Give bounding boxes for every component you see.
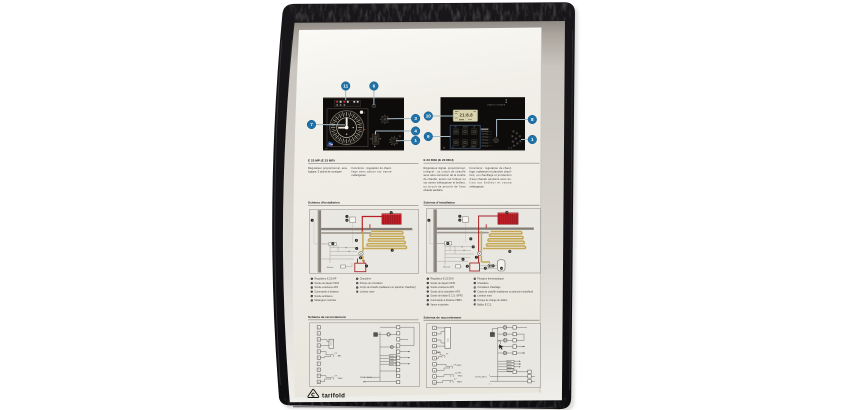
svg-text:C1: C1 bbox=[452, 146, 454, 148]
svg-text:ch1uffage: ch1uffage bbox=[481, 134, 488, 136]
svg-text:ch5uffage: ch5uffage bbox=[481, 145, 488, 147]
svg-text:Sonde extérieure AF5: Sonde extérieure AF5 bbox=[314, 286, 338, 289]
svg-text:vanne: vanne bbox=[390, 361, 394, 363]
svg-text:E 23 DIGI (E 23 DIGI): E 23 DIGI (E 23 DIGI) bbox=[424, 158, 454, 162]
svg-text:Commande à distance: Commande à distance bbox=[314, 291, 339, 294]
svg-text:Sonde de départ VF45: Sonde de départ VF45 bbox=[430, 282, 455, 285]
svg-text:ch3uffage: ch3uffage bbox=[481, 140, 488, 142]
svg-text:Commande à distance FBR1: Commande à distance FBR1 bbox=[430, 299, 462, 302]
svg-text:Sonde de la chaudière KF5: Sonde de la chaudière KF5 bbox=[430, 290, 460, 293]
svg-text:Régulateur E 23 MP: Régulateur E 23 MP bbox=[314, 278, 336, 281]
svg-text:Corps de chauffe (radiateurs o: Corps de chauffe (radiateurs ou plancher… bbox=[477, 290, 533, 293]
svg-text:Chaudière: Chaudière bbox=[360, 278, 372, 281]
svg-text:7: 7 bbox=[310, 122, 313, 127]
svg-text:LANDIS STAEFA: LANDIS STAEFA bbox=[487, 103, 506, 106]
svg-text:KF5: KF5 bbox=[458, 373, 461, 375]
svg-text:AF5: AF5 bbox=[437, 351, 440, 354]
svg-text:Sonde extérieure AF5: Sonde extérieure AF5 bbox=[430, 286, 454, 289]
svg-text:bus: bus bbox=[448, 338, 450, 341]
svg-text:MODE: MODE bbox=[463, 127, 468, 129]
svg-text:a b: a b bbox=[325, 148, 327, 150]
svg-text:ch4uffage: ch4uffage bbox=[481, 142, 488, 144]
svg-text:Sonde de ballon E.C.S.-SPF5: Sonde de ballon E.C.S.-SPF5 bbox=[430, 295, 463, 298]
svg-text:1: 1 bbox=[531, 137, 534, 142]
svg-text:vanne: vanne bbox=[508, 367, 512, 369]
svg-text:RESET: RESET bbox=[471, 146, 476, 148]
svg-text:Schéma d'installation: Schéma d'installation bbox=[424, 200, 456, 204]
svg-text:Mélangeur motorisé: Mélangeur motorisé bbox=[314, 299, 336, 302]
svg-text:E 23 MP (E 23 MP): E 23 MP (E 23 MP) bbox=[308, 158, 335, 162]
svg-text:e: e bbox=[489, 383, 490, 385]
svg-text:10: 10 bbox=[426, 114, 432, 119]
svg-text:VF45: VF45 bbox=[458, 375, 463, 377]
svg-text:vanne: vanne bbox=[390, 355, 394, 357]
svg-text:vanne: vanne bbox=[390, 358, 394, 360]
svg-text:vanne: vanne bbox=[508, 370, 512, 372]
svg-text:Régulateur digital, proportion: Régulateur digital, proportionnel,intégr… bbox=[424, 166, 467, 192]
svg-text:Ballon E.C.S.: Ballon E.C.S. bbox=[477, 303, 492, 306]
svg-text:21:8.8: 21:8.8 bbox=[460, 113, 474, 118]
svg-text:230 V~ 50 Hz: 230 V~ 50 Hz bbox=[360, 377, 372, 379]
svg-text:Limiteur maxi: Limiteur maxi bbox=[360, 291, 375, 294]
svg-text:vanne: vanne bbox=[508, 364, 512, 366]
svg-text:a: a bbox=[489, 374, 490, 376]
svg-text:SET: SET bbox=[462, 146, 465, 148]
svg-text:ch2uffage: ch2uffage bbox=[481, 137, 488, 139]
svg-text:Sonde de départ VF64: Sonde de départ VF64 bbox=[314, 282, 339, 285]
svg-text:tarifold: tarifold bbox=[322, 392, 345, 399]
svg-text:vanne: vanne bbox=[508, 361, 512, 363]
svg-text:Pompe de circulation: Pompe de circulation bbox=[360, 282, 383, 285]
svg-text:1: 1 bbox=[414, 138, 417, 143]
svg-text:8: 8 bbox=[531, 117, 534, 122]
svg-text:Mazout: Mazout bbox=[327, 266, 334, 269]
svg-text:Régulateur E 23 DIGI: Régulateur E 23 DIGI bbox=[430, 278, 454, 281]
svg-text:Schéma de raccordement: Schéma de raccordement bbox=[308, 315, 346, 319]
svg-text:Limiteur maxi: Limiteur maxi bbox=[477, 295, 492, 298]
svg-text:Régulateur proportionnel, ana-: Régulateur proportionnel, ana-logique, 3… bbox=[308, 166, 348, 174]
svg-text:Schéma d'installation: Schéma d'installation bbox=[308, 201, 340, 205]
svg-text:11: 11 bbox=[343, 84, 348, 89]
svg-text:FBR1: FBR1 bbox=[457, 381, 462, 383]
svg-text:Chaudière: Chaudière bbox=[477, 282, 489, 285]
svg-text:SPF5: SPF5 bbox=[457, 365, 462, 367]
svg-text:Sonde ambiance: Sonde ambiance bbox=[314, 295, 333, 298]
svg-text:Corps de chauffe (radiateurs o: Corps de chauffe (radiateurs ou plancher… bbox=[360, 286, 416, 289]
svg-text:Pompe de charge du ballon: Pompe de charge du ballon bbox=[477, 299, 507, 302]
svg-text:~50 Hz 230 V: ~50 Hz 230 V bbox=[475, 377, 488, 379]
svg-text:Schéma de raccordement: Schéma de raccordement bbox=[424, 315, 462, 319]
svg-text:9: 9 bbox=[427, 134, 430, 139]
svg-text:vanne: vanne bbox=[390, 364, 394, 366]
svg-text:6: 6 bbox=[373, 84, 376, 89]
svg-text:Plongeur thermostatique: Plongeur thermostatique bbox=[477, 278, 504, 281]
svg-text:Circulateur chauffage: Circulateur chauffage bbox=[477, 286, 501, 289]
svg-text:Mazout: Mazout bbox=[444, 266, 451, 269]
svg-text:4: 4 bbox=[414, 129, 417, 134]
svg-text:3: 3 bbox=[414, 116, 417, 121]
svg-text:ch0uffage: ch0uffage bbox=[481, 131, 488, 133]
svg-text:2 4 6: 2 4 6 bbox=[508, 148, 512, 150]
svg-text:Vanne motorisée: Vanne motorisée bbox=[430, 303, 449, 306]
